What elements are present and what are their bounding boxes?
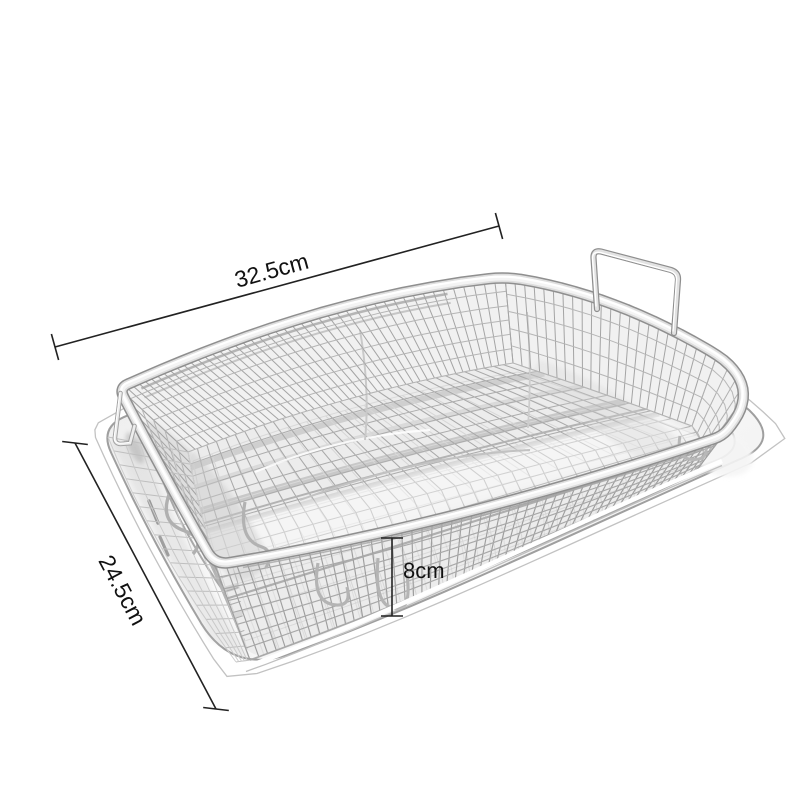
svg-text:8cm: 8cm [403,558,445,583]
